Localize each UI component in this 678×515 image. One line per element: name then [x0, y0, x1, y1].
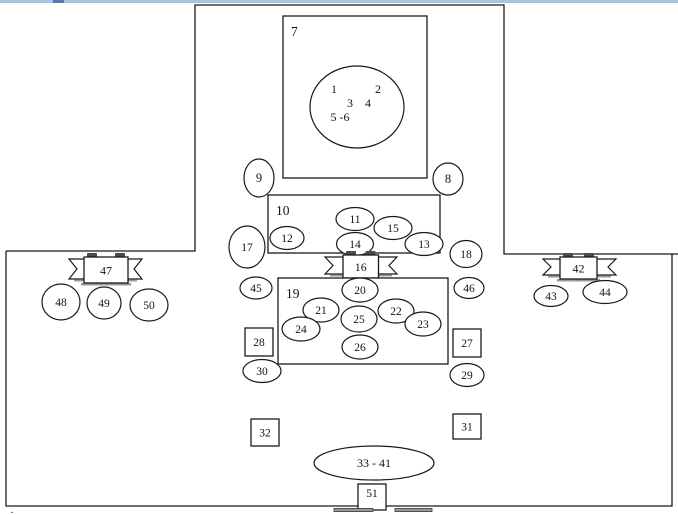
ellipse-29[interactable]: 29 — [450, 364, 484, 387]
ellipse-43-label: 43 — [545, 291, 557, 303]
ellipse-21-label: 21 — [315, 305, 327, 317]
ellipse-33-41-label: 33 - 41 — [357, 456, 391, 470]
ellipse-9[interactable]: 9 — [244, 159, 274, 197]
ellipse-25[interactable]: 25 — [341, 306, 377, 332]
rect-31-label: 31 — [461, 422, 473, 434]
ellipse-22-label: 22 — [390, 306, 402, 318]
annotation-pos-5-6: 5 -6 — [331, 110, 350, 124]
ellipse-head-circle-outline[interactable] — [310, 66, 404, 148]
ellipse-15-label: 15 — [387, 223, 399, 235]
rect-32-label: 32 — [259, 428, 271, 440]
cutoff-bar-right — [395, 509, 432, 512]
ellipse-46[interactable]: 46 — [454, 278, 484, 299]
ellipse-48[interactable]: 48 — [42, 284, 80, 320]
drawing-canvas: 7981011151214131718164546192021222524232… — [0, 0, 678, 515]
rect-10-label: 10 — [276, 203, 290, 218]
ellipse-24[interactable]: 24 — [282, 317, 320, 341]
ellipse-30[interactable]: 30 — [243, 360, 281, 383]
cutoff-bar-left — [334, 509, 373, 512]
rect-31[interactable]: 31 — [453, 414, 481, 439]
ellipse-44[interactable]: 44 — [583, 281, 627, 304]
ellipse-20[interactable]: 20 — [342, 278, 378, 302]
ellipse-23-label: 23 — [417, 319, 429, 331]
ellipse-45-label: 45 — [250, 283, 262, 295]
ellipse-18-label: 18 — [460, 249, 472, 261]
ribbon-16-right-shadow — [379, 275, 393, 277]
annotation-pos-4: 4 — [365, 96, 371, 110]
ellipse-26-label: 26 — [354, 342, 366, 354]
ellipse-29-label: 29 — [461, 370, 473, 382]
bottom-left-period-mark: . — [11, 504, 14, 515]
rect-7-label: 7 — [291, 24, 298, 39]
ellipse-45[interactable]: 45 — [240, 277, 272, 299]
ellipse-49-label: 49 — [98, 298, 110, 310]
ribbon-47[interactable]: 47 — [69, 253, 142, 286]
ribbon-42-left-shadow — [548, 276, 560, 278]
ribbon-42-right-shadow — [597, 276, 611, 278]
rect-27[interactable]: 27 — [453, 329, 481, 357]
ellipse-44-label: 44 — [599, 287, 611, 299]
ellipse-11-label: 11 — [349, 214, 360, 226]
ellipse-23[interactable]: 23 — [405, 312, 441, 336]
ribbon-16-label: 16 — [355, 260, 367, 274]
ribbon-42-label: 42 — [573, 262, 585, 276]
ribbon-47-label: 47 — [100, 264, 112, 278]
window-top-bar — [0, 0, 678, 3]
annotation-pos-2: 2 — [375, 82, 381, 96]
ribbon-16[interactable]: 16 — [325, 251, 397, 281]
ellipse-14-label: 14 — [349, 239, 361, 251]
ellipse-12-label: 12 — [281, 233, 293, 245]
ellipse-11[interactable]: 11 — [336, 208, 374, 231]
ellipse-33-41[interactable]: 33 - 41 — [314, 446, 434, 480]
ribbon-47-right-shadow — [128, 280, 137, 282]
ribbon-47-left-shadow — [74, 280, 84, 282]
ellipse-9-label: 9 — [256, 171, 262, 185]
ellipse-13-label: 13 — [418, 239, 430, 251]
ellipse-8[interactable]: 8 — [433, 163, 463, 195]
ellipse-15[interactable]: 15 — [374, 217, 412, 240]
ellipse-20-label: 20 — [354, 285, 366, 297]
rect-51[interactable]: 51 — [358, 484, 386, 510]
window-top-bar-accent — [53, 0, 64, 3]
ellipse-13[interactable]: 13 — [405, 233, 443, 256]
rect-32[interactable]: 32 — [251, 419, 279, 446]
ellipse-49[interactable]: 49 — [87, 287, 121, 319]
ellipse-18[interactable]: 18 — [450, 241, 482, 268]
rect-27-label: 27 — [461, 338, 473, 350]
ellipse-26[interactable]: 26 — [342, 335, 378, 359]
ellipse-30-label: 30 — [256, 366, 268, 378]
ellipse-8-label: 8 — [445, 172, 451, 186]
rect-28[interactable]: 28 — [245, 328, 273, 356]
ellipse-17-label: 17 — [241, 242, 253, 254]
ellipse-25-label: 25 — [353, 314, 365, 326]
ellipse-46-label: 46 — [463, 283, 475, 295]
rect-51-label: 51 — [366, 488, 378, 500]
ellipse-17[interactable]: 17 — [229, 226, 265, 268]
ellipse-50-label: 50 — [143, 300, 155, 312]
ellipse-50[interactable]: 50 — [130, 289, 168, 321]
ellipse-12[interactable]: 12 — [270, 227, 304, 250]
ellipse-43[interactable]: 43 — [534, 286, 568, 307]
annotation-pos-1: 1 — [331, 82, 337, 96]
rect-28-label: 28 — [253, 337, 265, 349]
rect-19-label: 19 — [286, 286, 300, 301]
annotation-pos-3: 3 — [347, 96, 353, 110]
ribbon-16-left-shadow — [330, 275, 343, 277]
ribbon-42[interactable]: 42 — [543, 253, 616, 282]
ellipse-48-label: 48 — [55, 297, 67, 309]
ellipse-head-circle[interactable] — [310, 66, 404, 148]
ellipse-24-label: 24 — [295, 324, 307, 336]
